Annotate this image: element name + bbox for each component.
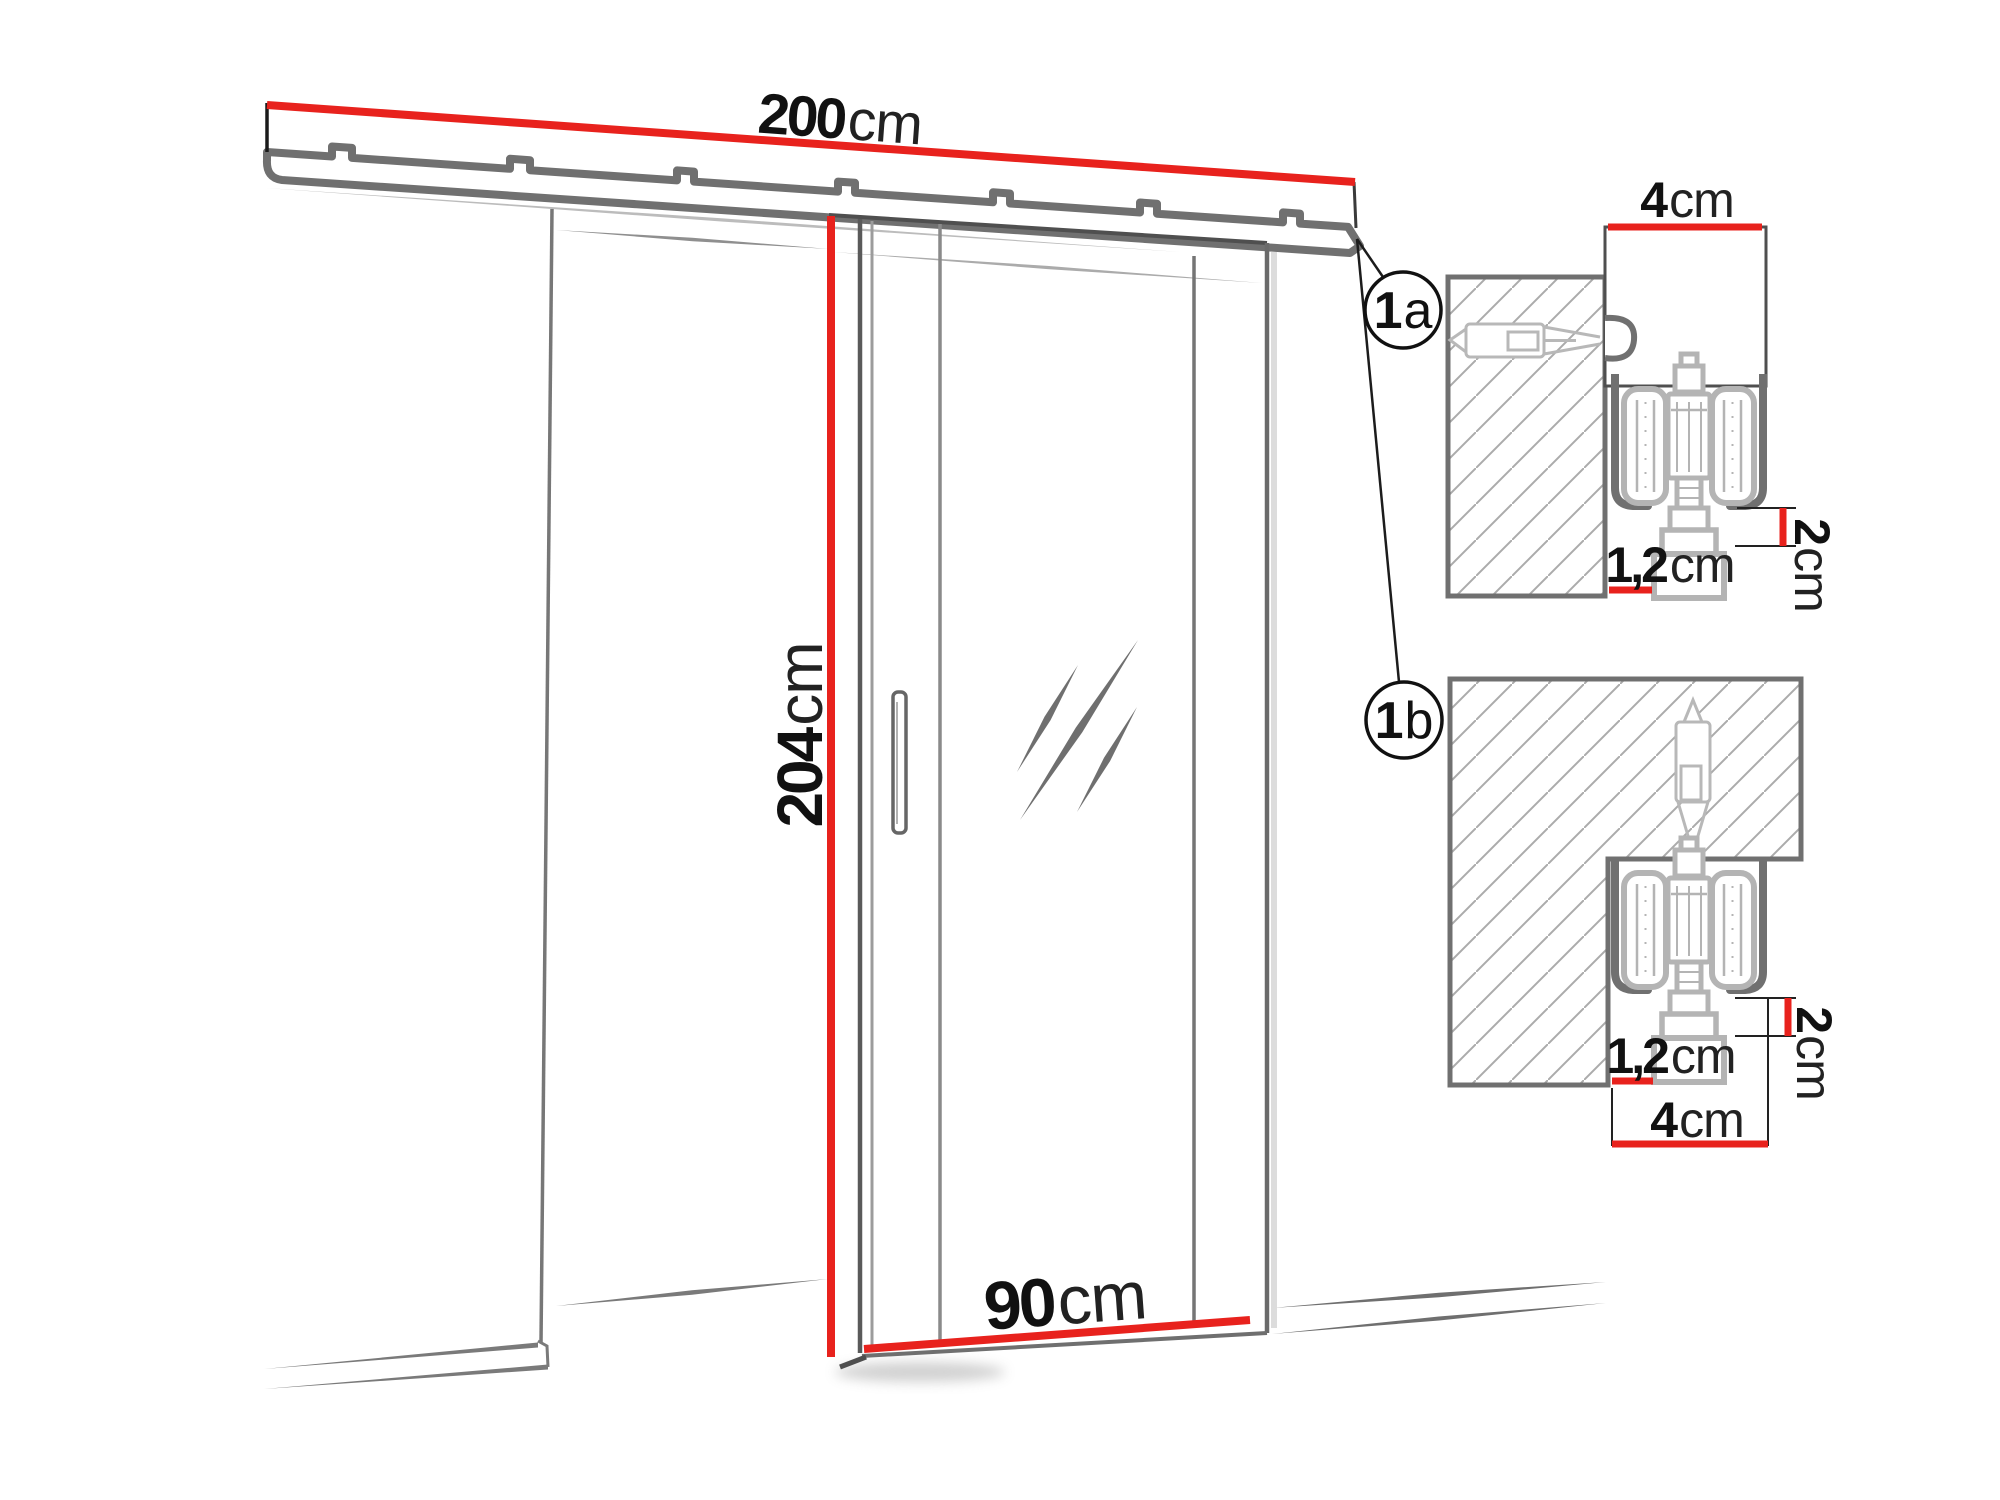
detail-1a-wall-hook	[1605, 318, 1634, 359]
door-height-value: 204	[768, 730, 832, 828]
detail-1b-profile-width-label: 4 cm	[1650, 1095, 1743, 1145]
baseboard-right-bottom-edge	[1272, 1303, 1606, 1334]
baseboard-right-top-edge	[1272, 1282, 1606, 1308]
callout-1b-letter: b	[1405, 695, 1434, 747]
door-top-shadow	[833, 252, 1262, 283]
track-width-unit: cm	[846, 92, 924, 154]
door-width-unit: cm	[1055, 1261, 1148, 1335]
door-width-label: 90 cm	[982, 1261, 1149, 1341]
sliding-door-dimension-diagram: 200 cm 204 cm 90 cm 1 a 1 b 4 cm 2 cm 1,…	[0, 0, 2000, 1500]
detail-1b-clearance-value: 2	[1789, 1006, 1839, 1031]
detail-1b-clearance-unit: cm	[1789, 1035, 1839, 1100]
detail-1a-gap-label: 1,2 cm	[1605, 540, 1734, 590]
door-height-unit: cm	[768, 642, 832, 725]
baseboard-right	[1272, 1282, 1606, 1334]
track-width-value: 200	[756, 86, 846, 149]
detail-1a-clearance-value: 2	[1787, 518, 1837, 543]
detail-1a-profile-width-unit: cm	[1669, 175, 1734, 225]
baseboard-left-bottom-edge	[264, 1365, 548, 1390]
detail-1a-profile-width-label: 4 cm	[1640, 175, 1733, 225]
callout-1b-number: 1	[1375, 695, 1404, 747]
callout-1a-letter: a	[1404, 285, 1433, 337]
detail-1b-gap-value: 1,2	[1606, 1031, 1667, 1081]
detail-1b-profile-width-value: 4	[1650, 1095, 1675, 1145]
baseboard-left-end-cap	[538, 1341, 548, 1367]
detail-1a-gap-value: 1,2	[1605, 540, 1666, 590]
track-width-label: 200 cm	[756, 86, 924, 155]
callout-1b-label: 1 b	[1375, 695, 1434, 747]
door-height-label: 204 cm	[768, 642, 832, 827]
detail-1a-clearance-label: 2 cm	[1787, 518, 1837, 611]
door-width-value: 90	[982, 1268, 1056, 1341]
door-handle	[893, 692, 906, 833]
glass-shine-marks	[1017, 640, 1138, 820]
detail-1b-clearance-label: 2 cm	[1789, 1006, 1839, 1099]
opening-left-edge	[541, 209, 552, 1343]
detail-1a-gap-unit: cm	[1670, 540, 1735, 590]
callout-1a-number: 1	[1374, 285, 1403, 337]
callout-1a-label: 1 a	[1374, 285, 1433, 337]
detail-1b-gap-unit: cm	[1671, 1031, 1736, 1081]
detail-1a-profile-width-value: 4	[1640, 175, 1665, 225]
baseboard-left	[264, 1341, 548, 1389]
detail-1b-profile-width-unit: cm	[1679, 1095, 1744, 1145]
opening-top-shadow	[556, 230, 829, 249]
detail-1a-clearance-unit: cm	[1787, 547, 1837, 612]
baseboard-left-top-edge	[264, 1343, 538, 1370]
opening-floor-line	[556, 1279, 828, 1306]
detail-1b-gap-label: 1,2 cm	[1606, 1031, 1735, 1081]
sliding-door-panel	[829, 215, 1274, 1367]
door-floor-shadow	[835, 1362, 1005, 1382]
track-right-end-cap	[1354, 182, 1356, 228]
